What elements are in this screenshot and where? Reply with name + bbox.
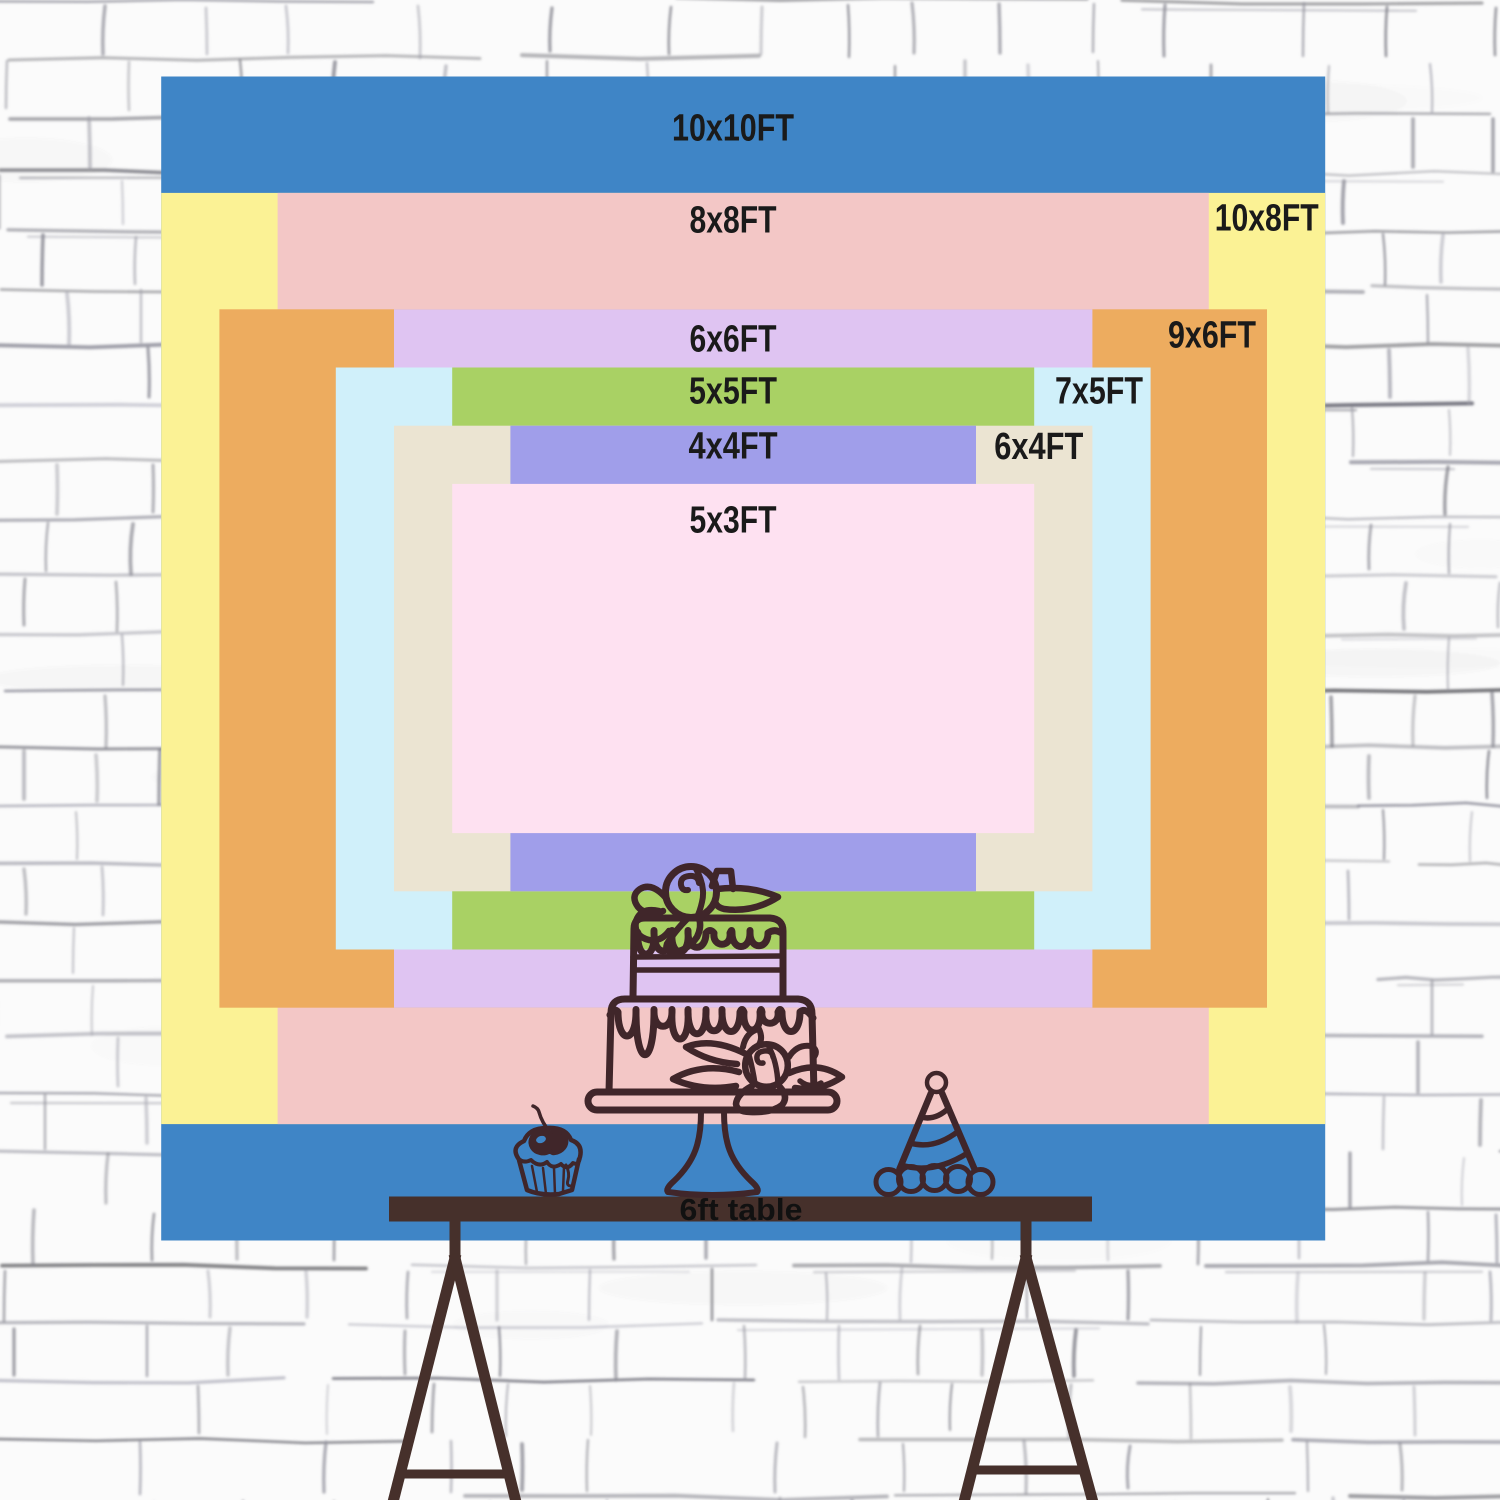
svg-text:6x4FT: 6x4FT [994, 426, 1083, 468]
svg-text:7x5FT: 7x5FT [1055, 371, 1143, 413]
svg-text:8x8FT: 8x8FT [690, 200, 777, 242]
svg-text:5x5FT: 5x5FT [689, 371, 777, 413]
svg-text:6x6FT: 6x6FT [690, 319, 777, 361]
svg-text:9x6FT: 9x6FT [1168, 315, 1256, 357]
svg-text:5x3FT: 5x3FT [690, 500, 777, 542]
svg-text:10x10FT: 10x10FT [672, 108, 794, 150]
svg-text:10x8FT: 10x8FT [1215, 198, 1319, 240]
svg-text:4x4FT: 4x4FT [689, 426, 778, 468]
